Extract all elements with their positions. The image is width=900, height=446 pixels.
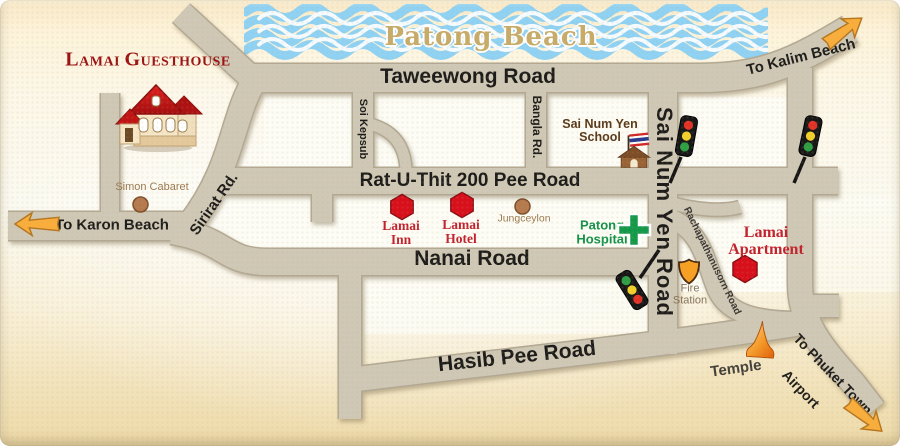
- fire-station-shield-icon: [678, 258, 700, 285]
- poi-fire-station: Fire Station: [673, 283, 707, 306]
- simon-cabaret-dot-icon: [132, 196, 149, 213]
- lamai-inn-marker-icon: [388, 193, 416, 221]
- hospital-cross-icon: [616, 212, 652, 248]
- map-canvas: Patong Beach Lamai Guesthouse: [0, 0, 900, 446]
- poi-lamai-inn-line2: Inn: [382, 233, 420, 247]
- beach-region-title: Patong Beach: [384, 22, 597, 52]
- guesthouse-house-icon: [108, 74, 204, 152]
- road-label-rat-u-thit: Rat-U-Thit 200 Pee Road: [360, 170, 581, 192]
- karon-direction-arrow-icon: [14, 211, 60, 237]
- road-label-bangla: Bangla Rd.: [530, 96, 544, 159]
- poi-simon-cabaret: Simon Cabaret: [115, 182, 188, 194]
- guesthouse-logo: Lamai Guesthouse: [65, 50, 230, 71]
- logo-line1: Lamai: [65, 49, 120, 71]
- road-label-soi-kepsub: Soi Kepsub: [357, 99, 369, 160]
- school-flag-icon: [613, 130, 655, 170]
- poi-fire-line1: Fire: [673, 283, 707, 295]
- poi-apartment-line1: Lamai: [728, 225, 804, 242]
- road-label-to-karon: To Karon Beach: [55, 217, 169, 234]
- poi-lamai-inn: Lamai Inn: [382, 219, 420, 247]
- traffic-light-icon: [788, 112, 832, 186]
- jungceylon-dot-icon: [514, 198, 531, 215]
- logo-line2: Guesthouse: [125, 49, 231, 71]
- traffic-light-icon: [664, 112, 708, 186]
- traffic-light-icon: [612, 246, 664, 314]
- lamai-apartment-marker-icon: [730, 254, 760, 284]
- poi-lamai-hotel: Lamai Hotel: [442, 218, 480, 246]
- road-label-taweewong: Taweewong Road: [380, 65, 556, 89]
- poi-fire-line2: Station: [673, 295, 707, 307]
- road-label-nanai: Nanai Road: [414, 247, 530, 271]
- poi-lamai-hotel-line2: Hotel: [442, 232, 480, 246]
- temple-stupa-icon: [739, 319, 784, 366]
- poi-jungceylon: Jungceylon: [497, 213, 550, 224]
- lamai-hotel-marker-icon: [448, 191, 476, 219]
- poi-lamai-hotel-line1: Lamai: [442, 218, 480, 232]
